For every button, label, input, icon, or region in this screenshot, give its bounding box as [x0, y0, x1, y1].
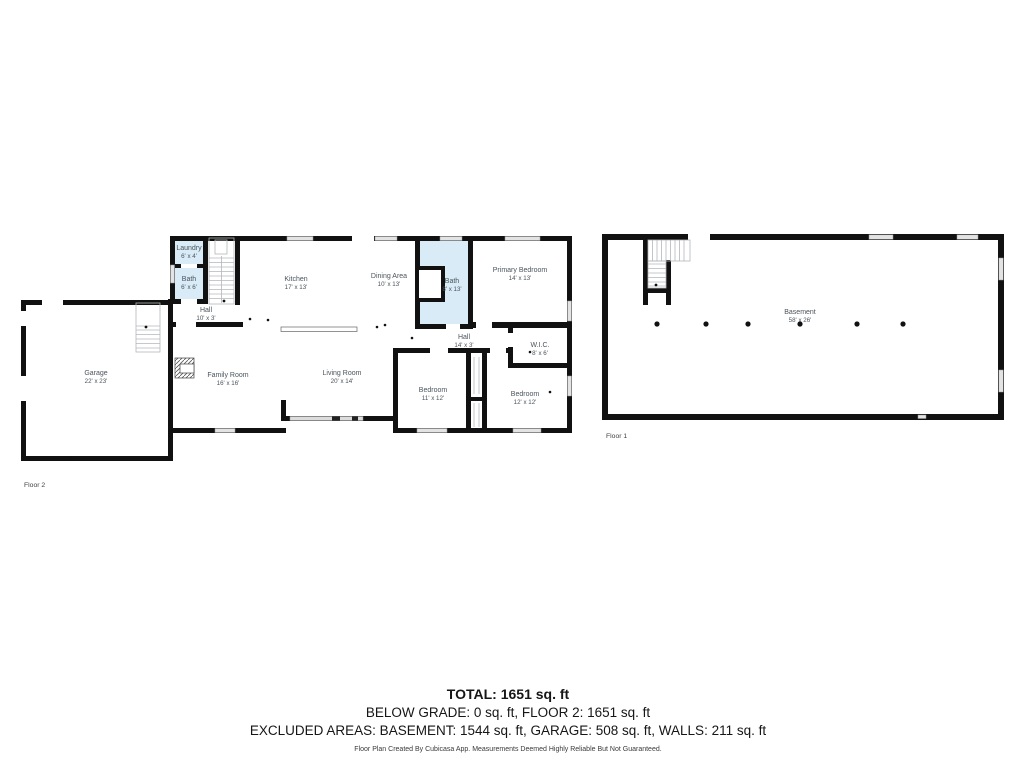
room-label-family-room: Family Room — [207, 372, 248, 379]
stair-door-dot — [655, 284, 658, 287]
room-label-hall-lower: Hall — [458, 334, 471, 341]
room-dims-hall-lower: 14' x 3' — [454, 342, 473, 349]
floor2-plan: Laundry 6' x 4' Bath 6' x 6' Hall 10' x … — [21, 236, 572, 489]
floor1-openings — [688, 234, 710, 240]
floor1-walls — [602, 234, 1004, 420]
area-summary: TOTAL: 1651 sq. ft BELOW GRADE: 0 sq. ft… — [0, 686, 1016, 753]
below-grade-text: BELOW GRADE: 0 sq. ft, FLOOR 2: 1651 sq.… — [0, 705, 1016, 720]
floorplan-page: Laundry 6' x 4' Bath 6' x 6' Hall 10' x … — [0, 0, 1024, 768]
floor1-label: Floor 1 — [606, 433, 627, 440]
room-dims-bedroom-1: 11' x 12' — [422, 395, 444, 402]
support-columns — [654, 321, 905, 326]
room-dims-garage: 22' x 23' — [85, 378, 108, 385]
room-dims-laundry: 6' x 4' — [181, 253, 197, 260]
room-dims-kitchen: 17' x 13' — [285, 284, 308, 291]
room-dims-bedroom-2: 12' x 12' — [514, 399, 537, 406]
room-dims-bath-small: 6' x 6' — [181, 284, 197, 291]
room-dims-wic: 8' x 6' — [532, 350, 548, 357]
floor1-windows — [869, 235, 1003, 419]
main-staircase-icon — [209, 238, 234, 304]
floor1-plan: Basement 58' x 26' Floor 1 — [602, 234, 1004, 440]
floor2-walls — [21, 236, 572, 461]
room-label-kitchen: Kitchen — [284, 276, 307, 283]
room-dims-family-room: 16' x 16' — [217, 380, 240, 387]
total-area-text: TOTAL: 1651 sq. ft — [0, 686, 1016, 702]
fireplace-icon — [175, 358, 194, 378]
room-label-basement: Basement — [784, 309, 816, 316]
kitchen-island — [281, 327, 357, 332]
room-label-bath-large: Bath — [445, 278, 460, 285]
room-label-garage: Garage — [84, 370, 107, 377]
closet-doors — [474, 357, 479, 427]
bathtub — [419, 266, 445, 302]
room-label-laundry: Laundry — [176, 245, 202, 252]
room-label-bath-small: Bath — [182, 276, 197, 283]
room-dims-hall-upper: 10' x 3' — [196, 315, 215, 322]
sliding-door — [290, 417, 363, 421]
room-label-hall-upper: Hall — [200, 307, 213, 314]
room-dims-basement: 58' x 26' — [789, 317, 812, 324]
room-label-wic: W.I.C. — [530, 342, 549, 349]
excluded-areas-text: EXCLUDED AREAS: BASEMENT: 1544 sq. ft, G… — [0, 723, 1016, 738]
disclaimer-text: Floor Plan Created By Cubicasa App. Meas… — [0, 746, 1016, 753]
room-label-bedroom-2: Bedroom — [511, 391, 540, 398]
room-label-primary-bedroom: Primary Bedroom — [493, 267, 548, 274]
floor1-room-labels: Basement 58' x 26' — [784, 309, 816, 324]
room-dims-primary-bedroom: 14' x 13' — [509, 275, 532, 282]
room-dims-living-room: 20' x 14' — [331, 378, 354, 385]
floor2-label: Floor 2 — [24, 482, 45, 489]
room-dims-bath-large: 8' x 13' — [442, 286, 461, 293]
room-dims-dining: 10' x 13' — [378, 281, 401, 288]
room-label-bedroom-1: Bedroom — [419, 387, 448, 394]
room-label-living-room: Living Room — [323, 370, 362, 377]
floorplan-drawing: Laundry 6' x 4' Bath 6' x 6' Hall 10' x … — [0, 0, 1024, 660]
garage-stairs-icon — [136, 303, 160, 352]
room-label-dining: Dining Area — [371, 273, 407, 280]
